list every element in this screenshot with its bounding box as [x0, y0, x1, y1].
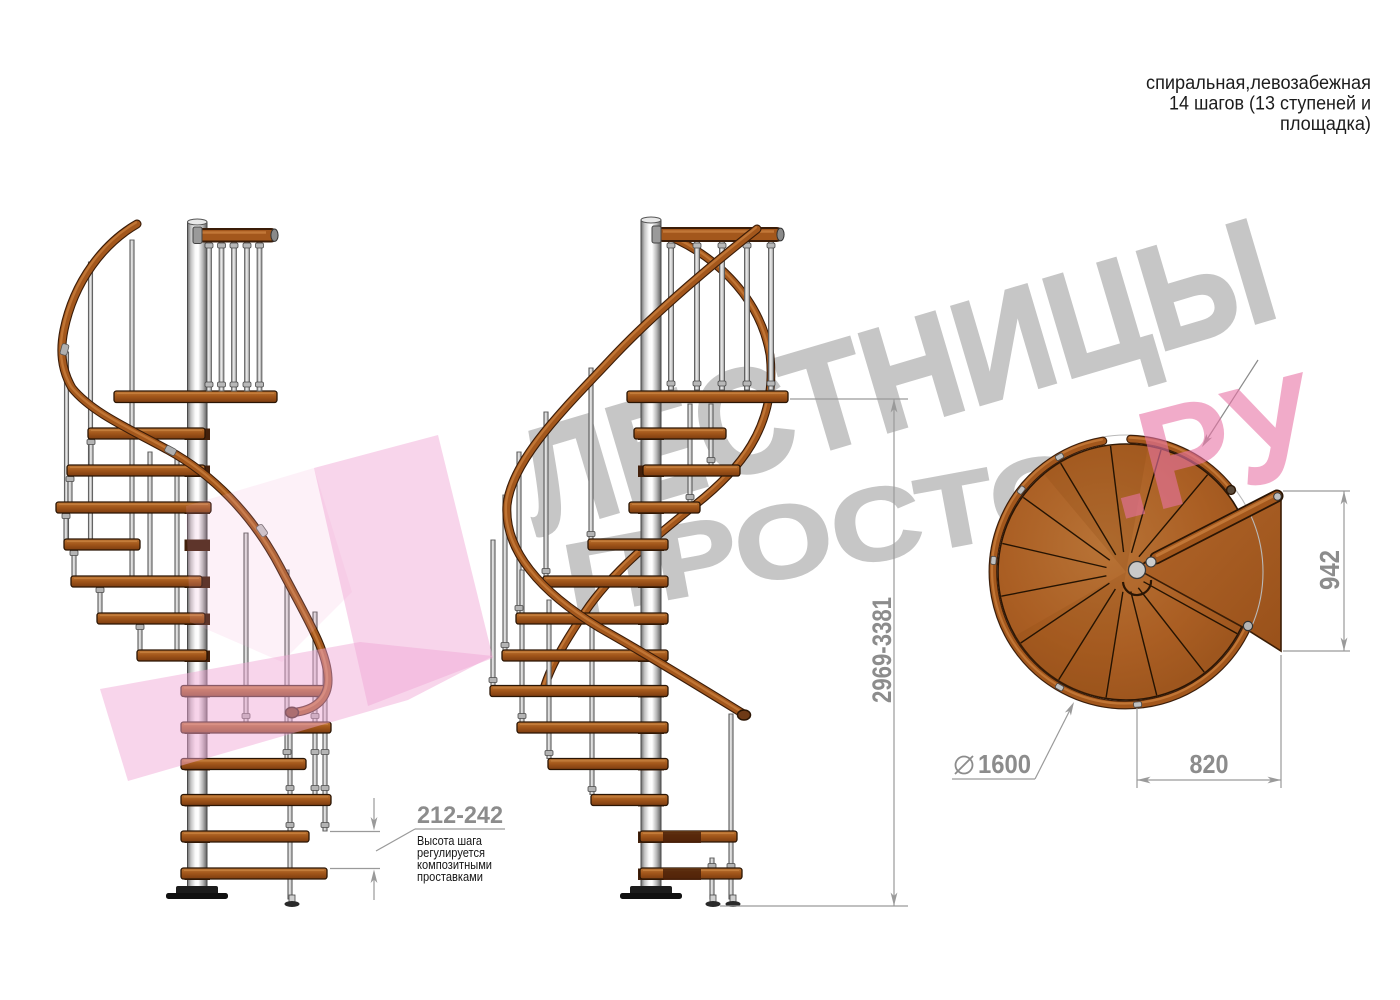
- svg-text:площадка): площадка): [1280, 114, 1371, 135]
- svg-text:212-242: 212-242: [417, 802, 503, 829]
- svg-text:820: 820: [1190, 749, 1229, 779]
- svg-text:942: 942: [1314, 550, 1345, 590]
- svg-text:2969-3381: 2969-3381: [867, 597, 897, 703]
- svg-text:14 шагов (13 ступеней и: 14 шагов (13 ступеней и: [1169, 94, 1371, 115]
- svg-text:проставками: проставками: [417, 870, 483, 884]
- svg-text:1600: 1600: [978, 749, 1031, 779]
- svg-text:спиральная,левозабежная: спиральная,левозабежная: [1146, 73, 1371, 94]
